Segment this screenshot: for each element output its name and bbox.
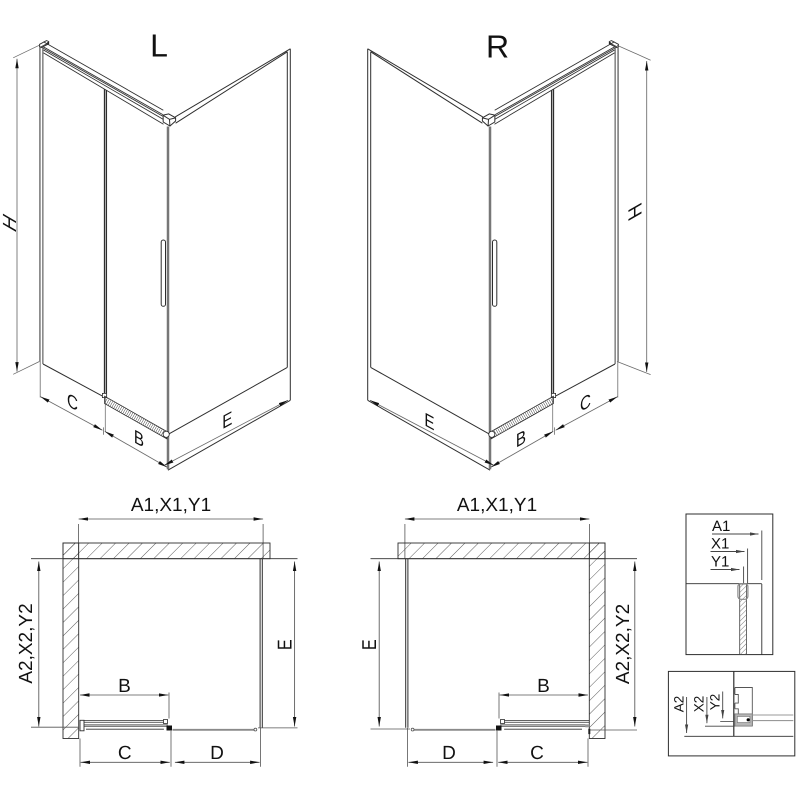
svg-text:A1,X1,Y1: A1,X1,Y1 [131, 495, 211, 516]
svg-text:B: B [118, 676, 131, 697]
svg-text:X1: X1 [711, 536, 729, 553]
svg-text:A1,X1,Y1: A1,X1,Y1 [457, 495, 537, 516]
svg-text:D: D [442, 743, 456, 764]
svg-text:X2: X2 [691, 696, 706, 713]
svg-text:D: D [210, 743, 224, 764]
svg-text:A2,X2,Y2: A2,X2,Y2 [613, 604, 634, 684]
svg-text:Y2: Y2 [707, 694, 722, 711]
svg-text:E: E [274, 639, 296, 650]
svg-text:R: R [486, 29, 509, 65]
svg-text:L: L [150, 28, 168, 64]
svg-text:C: C [580, 390, 591, 417]
svg-text:Y1: Y1 [711, 554, 729, 571]
svg-text:C: C [67, 390, 78, 417]
svg-text:C: C [530, 743, 544, 764]
svg-text:B: B [516, 426, 526, 453]
svg-text:A2: A2 [672, 696, 687, 713]
svg-text:H: H [0, 210, 21, 236]
svg-text:E: E [359, 639, 381, 650]
svg-text:A2,X2,Y2: A2,X2,Y2 [16, 603, 37, 683]
svg-text:H: H [626, 198, 647, 224]
svg-text:A1: A1 [712, 518, 730, 535]
svg-text:C: C [118, 743, 132, 764]
svg-text:B: B [537, 676, 550, 697]
svg-text:E: E [424, 409, 434, 436]
